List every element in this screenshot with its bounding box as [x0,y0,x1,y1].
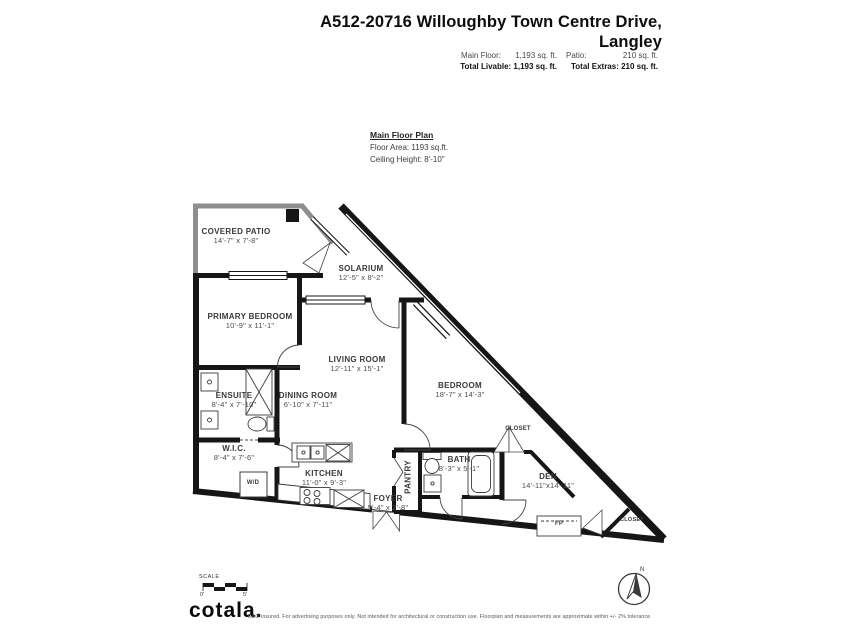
main-floor-value: 1,193 sq. ft. [515,51,557,60]
room-label-kitchen: KITCHEN 11'-0" x 9'-3" [302,469,346,487]
room-name: DINING ROOM [279,391,337,400]
room-dims: 12'-11" x 15'-1" [328,364,385,373]
plan-info-title: Main Floor Plan [370,129,448,142]
main-floor-label: Main Floor: [461,51,501,60]
solarium-glass-wall [312,218,348,254]
room-name: LIVING ROOM [328,355,385,364]
room-label-covered-patio: COVERED PATIO 14'-7" x 7'-8" [202,227,271,245]
room-dims: 12'-5" x 8'-2" [338,273,383,282]
room-label-ensuite: ENSUITE 8'-4" x 7'-10" [210,391,258,409]
plan-info-ceiling-height: Ceiling Height: 8'-10" [370,154,448,166]
room-name: CLOSET [505,426,531,432]
room-name: PRIMARY BEDROOM [208,312,293,321]
patio-value: 210 sq. ft. [623,51,658,60]
room-label-pantry: PANTRY [404,460,413,494]
plan-info-floor-area: Floor Area: 1193 sq.ft. [370,142,448,154]
patio-door-swing [303,243,330,273]
room-name: PANTRY [404,460,413,494]
patio-corner-post [286,209,299,222]
room-label-wic: W.I.C. 8'-4" x 7'-6" [214,444,254,462]
scale-label: SCALE [199,574,220,580]
room-label-foyer: FOYER 5'-4" x 2'-8" [368,494,408,512]
room-dims: 8'-4" x 7'-6" [214,453,254,462]
total-livable: Total Livable: 1,193 sq. ft. [460,62,557,71]
room-label-solarium: SOLARIUM 12'-5" x 8'-2" [338,264,383,282]
room-label-closet-1: CLOSET [505,426,531,432]
room-name: W/D [247,480,259,486]
room-label-bedroom: BEDROOM 18'-7" x 14'-3" [435,381,484,399]
plan-info: Main Floor Plan Floor Area: 1193 sq.ft. … [370,129,448,166]
compass-icon [619,574,650,605]
room-dims: 8'-3" x 5'-1" [435,464,483,473]
room-dims: 18'-7" x 14'-3" [435,390,484,399]
kitchen-island [292,443,352,462]
room-label-den: DEN 14'-11"x14'-11" [522,472,574,490]
room-label-fp: FP [555,521,563,527]
room-label-dining-room: DINING ROOM 6'-10" x 7'-11" [279,391,337,409]
scale-bar [203,583,247,591]
room-dims: 14'-7" x 7'-8" [202,236,271,245]
title-line-2: Langley [320,33,662,53]
disclaimer-text: E&O insured. For advertising purposes on… [248,614,652,620]
title-line-1: A512-20716 Willoughby Town Centre Drive, [320,13,662,33]
room-name: SOLARIUM [338,264,383,273]
compass-north-label: N [640,567,644,573]
total-extras: Total Extras: 210 sq. ft. [571,62,658,71]
room-name: FP [555,521,563,527]
room-name: ENSUITE [210,391,258,400]
room-dims: 14'-11"x14'-11" [522,481,574,490]
room-name: BEDROOM [435,381,484,390]
page-title: A512-20716 Willoughby Town Centre Drive,… [320,13,662,53]
scale-end: 5' [243,592,247,598]
room-dims: 8'-4" x 7'-10" [210,400,258,409]
room-name: DEN [522,472,574,481]
room-name: CLOSET [620,517,644,523]
scale-start: 0' [200,592,204,598]
room-name: W.I.C. [214,444,254,453]
floorplan-page: A512-20716 Willoughby Town Centre Drive,… [0,0,853,640]
room-dims: 11'-0" x 9'-3" [302,478,346,487]
logo-text: cotala [189,599,256,622]
room-name: KITCHEN [302,469,346,478]
room-dims: 10'-9" x 11'-1" [208,321,293,330]
room-name: BATH [435,455,483,464]
room-label-bath: BATH 8'-3" x 5'-1" [435,455,483,473]
floorplan-drawing [0,0,853,640]
room-name: COVERED PATIO [202,227,271,236]
room-label-wd: W/D [247,480,259,486]
patio-label: Patio: [566,51,586,60]
room-name: FOYER [368,494,408,503]
room-dims: 6'-10" x 7'-11" [279,400,337,409]
room-label-closet-2: CLOSET [620,517,644,523]
room-label-primary-bedroom: PRIMARY BEDROOM 10'-9" x 11'-1" [208,312,293,330]
room-dims: 5'-4" x 2'-8" [368,503,408,512]
room-label-living-room: LIVING ROOM 12'-11" x 15'-1" [328,355,385,373]
